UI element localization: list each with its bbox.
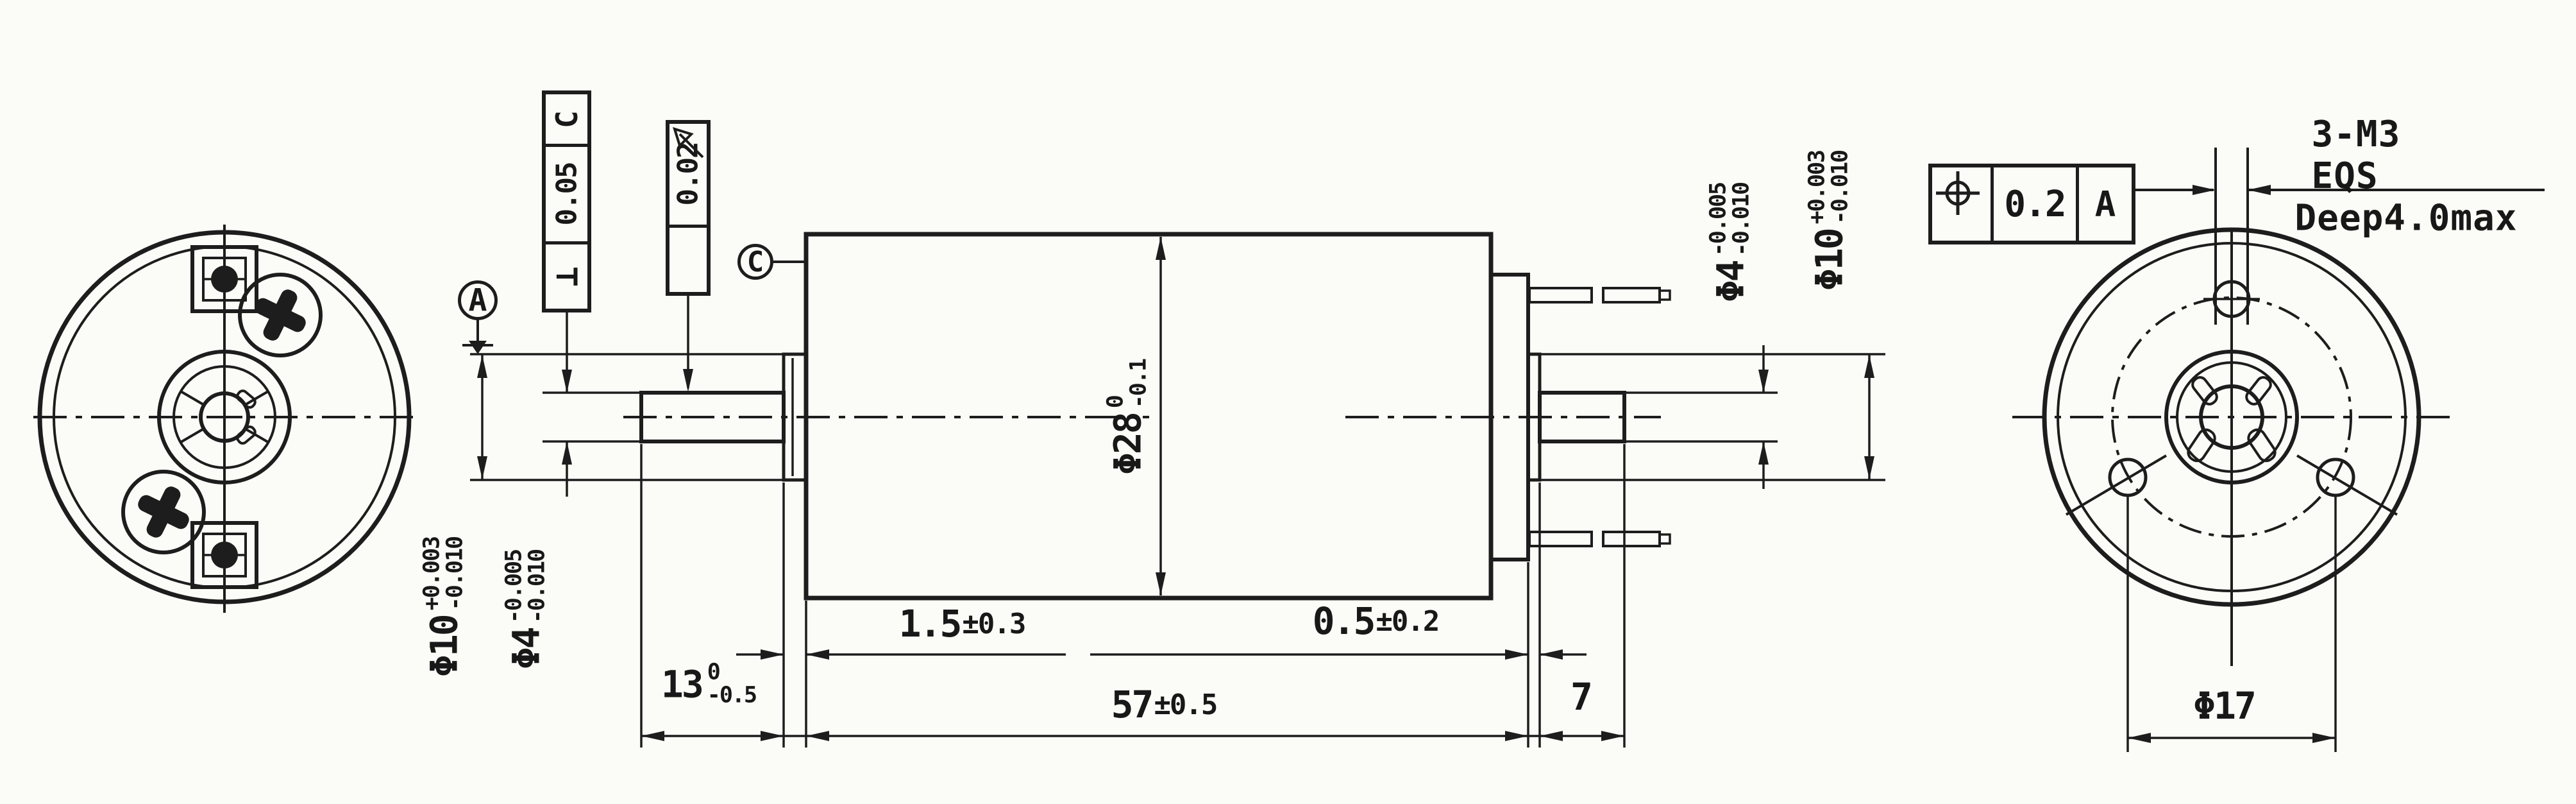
perpendicularity-value: 0.05 — [550, 163, 583, 226]
dim-body-diameter: Φ28 0-0.1 — [1104, 359, 1150, 475]
left-view-terminal-top — [192, 247, 257, 311]
left-view-shaft-section — [201, 389, 257, 445]
position-tolerance-frame: 0.2 A — [1928, 164, 2135, 244]
dim-front-boss-value: Φ10 — [422, 615, 466, 677]
dim-front-shaft-upper: -0.005 — [503, 550, 526, 623]
dim-rear-shaft-length-value: 7 — [1570, 675, 1591, 719]
perpendicularity-icon: ⊥ — [548, 266, 586, 286]
dim-rear-boss-upper: +0.003 — [1806, 151, 1829, 224]
dim-front-shaft-linework — [543, 312, 641, 497]
dim-body-length-tol: ±0.5 — [1154, 689, 1216, 721]
dim-rear-boss-protrusion: 0.5 ±0.2 — [1313, 599, 1439, 643]
dim-front-shaft-lower: -0.010 — [526, 550, 549, 623]
position-tolerance-icon — [1932, 167, 1983, 219]
terminal-pins-bottom — [1529, 532, 1670, 546]
dim-front-protrusion-tol: ±0.3 — [962, 608, 1025, 640]
left-view-screw-upper-right — [240, 275, 321, 355]
dim-front-boss-upper: +0.003 — [421, 537, 444, 610]
dim-rear-protrusion-tol: ±0.2 — [1376, 605, 1438, 638]
left-view-screw-lower-left — [123, 472, 204, 552]
perpendicularity-symbol-cell: ⊥ — [546, 244, 587, 309]
dim-front-protrusion-value: 1.5 — [899, 602, 961, 646]
dim-body-diameter-value: Φ28 — [1106, 413, 1149, 475]
position-symbol-cell — [1932, 167, 1994, 241]
dim-rear-boss-value: Φ10 — [1807, 229, 1851, 291]
dim-bolt-circle: Φ17 — [2193, 684, 2255, 728]
runout-leader — [683, 296, 693, 392]
dim-front-shaft-diameter: Φ4 -0.005-0.010 — [503, 550, 548, 669]
dim-body-diameter-linework — [1156, 237, 1166, 595]
dim-front-shaft-value: Φ4 — [504, 628, 548, 669]
dim-front-boss-protrusion: 1.5 ±0.3 — [899, 602, 1025, 646]
left-end-view — [33, 225, 417, 613]
position-value: 0.2 — [1994, 167, 2079, 241]
runout-arrow-icon — [669, 124, 709, 164]
dim-shaft-length-value: 13 — [661, 662, 702, 706]
dim-rear-shaft-diameter: Φ4 -0.005-0.010 — [1707, 183, 1753, 302]
perpendicularity-tolerance-frame: C 0.05 ⊥ — [542, 90, 591, 312]
dim-body-diameter-upper: 0 — [1104, 396, 1127, 408]
dim-rear-shaft-lower: -0.010 — [1730, 183, 1753, 256]
left-view-terminal-bottom — [192, 523, 257, 587]
dim-rear-shaft-length: 7 — [1570, 675, 1591, 719]
dim-rear-boss-lower: -0.010 — [1829, 151, 1852, 224]
dim-shaft-length-lower: -0.5 — [707, 684, 756, 707]
datum-c-balloon: C — [737, 244, 773, 280]
runout-tolerance-frame: 0.02 — [666, 120, 711, 296]
dim-shaft-length: 13 0-0.5 — [661, 661, 756, 706]
dim-body-length-value: 57 — [1111, 683, 1152, 726]
engineering-drawing: C 0.05 ⊥ 0.02 0.2 A A — [0, 0, 2576, 804]
dim-bolt-circle-value: Φ17 — [2193, 684, 2255, 728]
datum-a-leader — [462, 320, 493, 354]
dim-body-length: 57 ±0.5 — [1111, 683, 1217, 726]
dim-rear-protrusion-value: 0.5 — [1313, 599, 1374, 643]
terminal-pins-top — [1529, 288, 1670, 302]
runout-symbol-cell — [669, 228, 707, 292]
dim-body-diameter-lower: -0.1 — [1127, 359, 1150, 408]
position-datum-ref: A — [2079, 167, 2132, 241]
dim-rear-shaft-value: Φ4 — [1708, 261, 1752, 302]
perpendicularity-datum-cell: C — [546, 94, 587, 147]
datum-a-balloon: A — [458, 280, 498, 320]
thread-depth-text: Deep4.0max — [2294, 198, 2517, 239]
dim-rear-shaft-upper: -0.005 — [1707, 183, 1730, 256]
dim-rear-boss-diameter: Φ10 +0.003-0.010 — [1806, 151, 1851, 291]
dim-front-boss-protrusion-linework — [736, 649, 1066, 660]
dim-front-boss-lower: -0.010 — [444, 537, 467, 610]
perpendicularity-value-cell: 0.05 — [546, 147, 587, 244]
dim-shaft-length-upper: 0 — [707, 661, 720, 684]
datum-ref-label: C — [549, 110, 584, 128]
thread-callout-text: 3-M3 EQS — [2312, 114, 2488, 197]
dim-rear-boss-protrusion-linework — [1090, 649, 1587, 660]
dim-front-boss-diameter: Φ10 +0.003-0.010 — [421, 537, 466, 677]
drawing-linework — [0, 0, 2576, 804]
